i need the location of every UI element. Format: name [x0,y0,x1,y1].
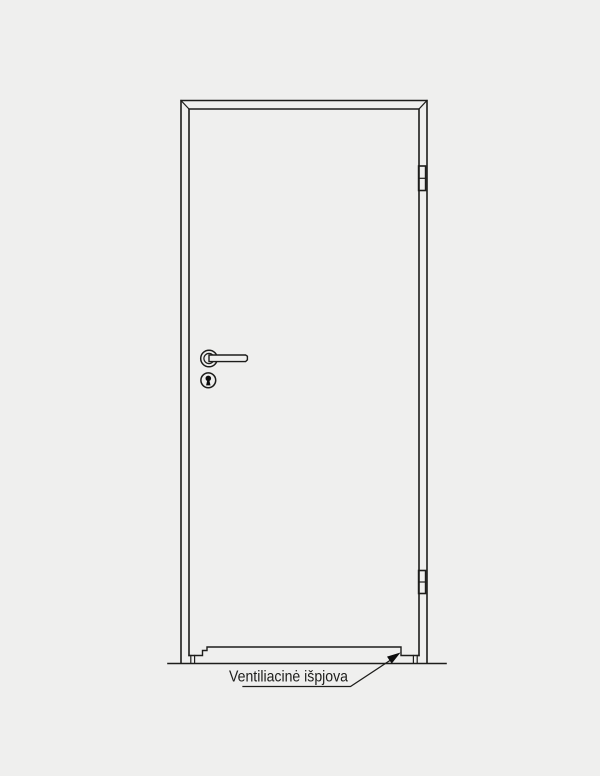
drawing-canvas: Ventiliacinė išpjova [0,0,600,776]
drawing-background [0,0,600,776]
handle-lever [209,355,247,362]
ventilation-label: Ventiliacinė išpjova [229,669,348,686]
door-technical-drawing: Ventiliacinė išpjova [0,0,600,776]
